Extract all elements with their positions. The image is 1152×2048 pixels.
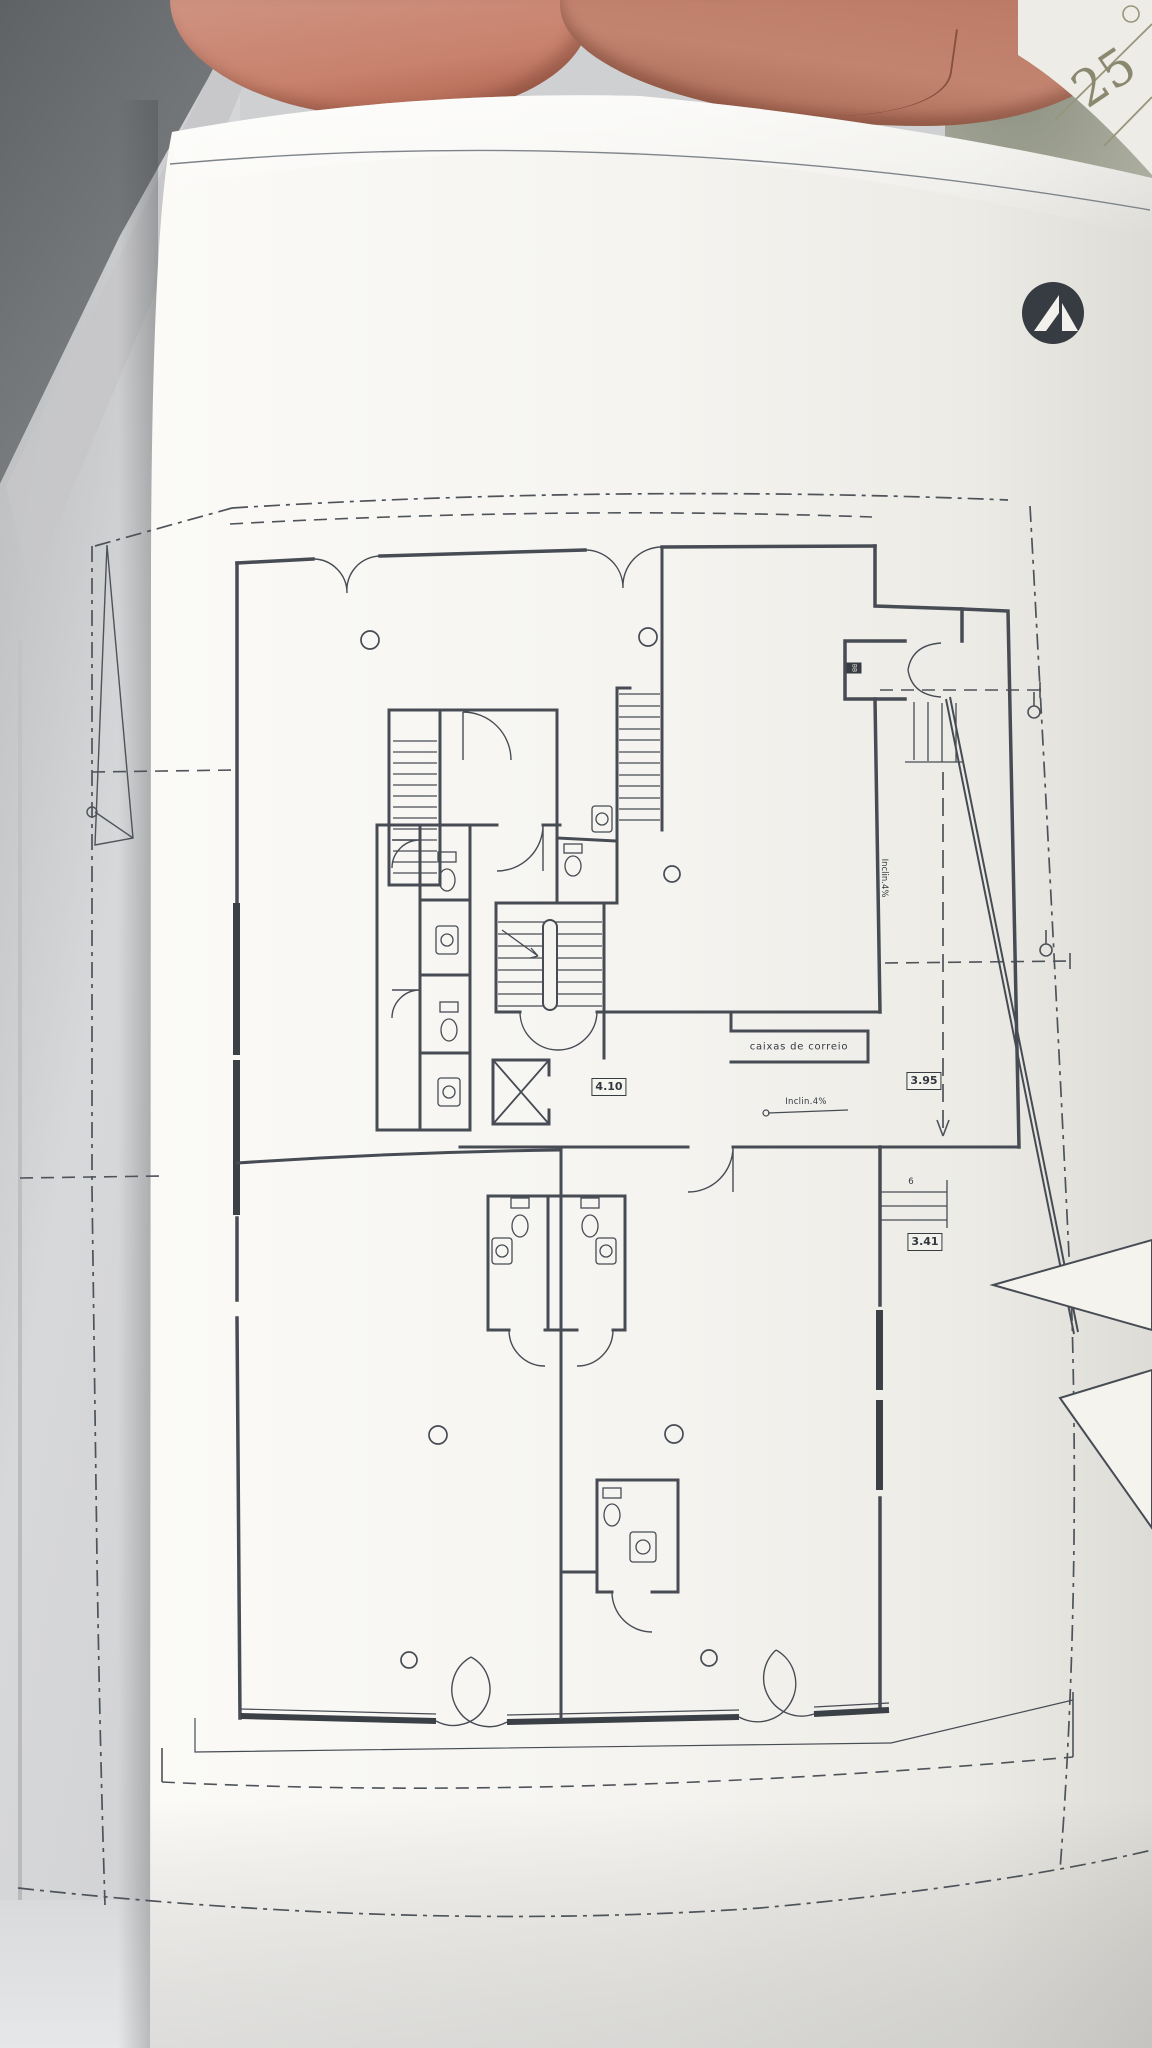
dimension-walkway-upper: 3.95: [906, 1072, 941, 1090]
slope-label: Inclin.4%: [785, 1097, 827, 1107]
steps-count-label: 6: [908, 1177, 913, 1187]
dimension-walkway-lower: 3.41: [907, 1233, 942, 1251]
mailboxes-label: caixas de correio: [750, 1042, 849, 1053]
entrance-tag: BB: [847, 663, 862, 674]
dimension-hall-width: 4.10: [591, 1078, 626, 1096]
photo-of-floor-plan-sheet: 25: [0, 0, 1152, 2048]
ramp-slope-label: Inclin.4%: [879, 859, 889, 898]
plan-labels: caixas de correio Inclin.4% Inclin.4% 4.…: [0, 0, 1152, 2048]
